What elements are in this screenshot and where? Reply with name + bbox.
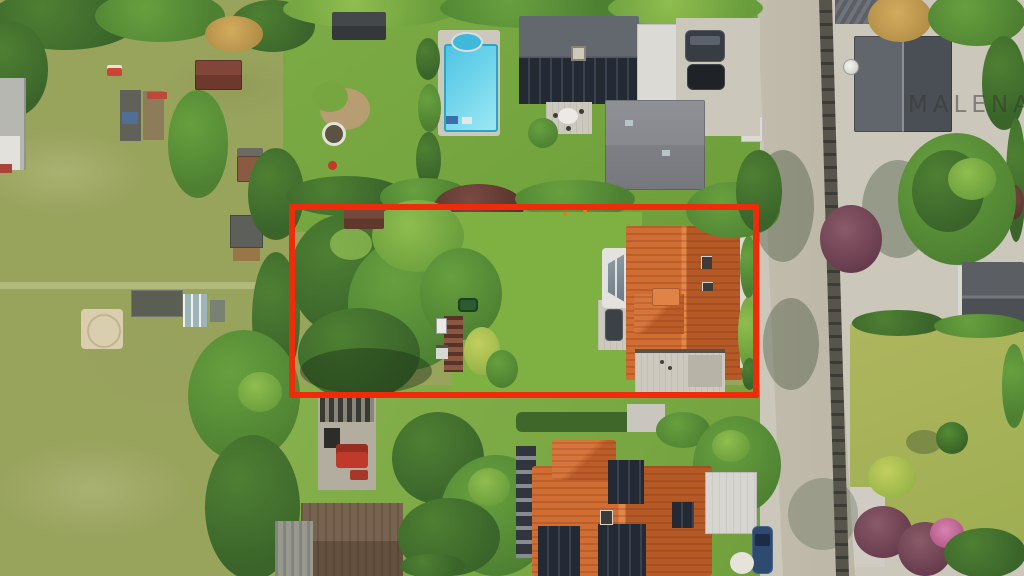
bottom-house-roof-extension bbox=[552, 440, 616, 480]
skylight bbox=[625, 120, 633, 126]
second-house-gray-roof bbox=[605, 100, 705, 190]
patio-table bbox=[558, 108, 578, 124]
barn-roof bbox=[301, 503, 403, 576]
tree-allotment bbox=[168, 90, 228, 198]
white-flowering-bush bbox=[730, 552, 754, 574]
dry-patch bbox=[205, 16, 263, 52]
solar-panel-array bbox=[608, 460, 644, 504]
bushes-right-edge bbox=[1002, 344, 1024, 428]
red-garden-furniture bbox=[336, 444, 368, 468]
blue-tarp bbox=[122, 112, 138, 124]
field-track-line bbox=[0, 282, 292, 289]
canopy-highlight bbox=[948, 158, 996, 200]
chimney bbox=[571, 46, 586, 61]
patio-chair bbox=[553, 113, 558, 118]
lawn-overlay bbox=[312, 82, 348, 112]
pool-equipment bbox=[462, 117, 472, 124]
solar-panel-array bbox=[598, 524, 646, 576]
tree-near-patio bbox=[528, 118, 558, 148]
solar-panel-array bbox=[538, 526, 580, 576]
red-object-left-edge bbox=[0, 164, 12, 173]
satellite-dish bbox=[843, 59, 859, 75]
gray-roof-bottom-left bbox=[275, 521, 313, 576]
red-planter bbox=[147, 92, 167, 99]
parked-suv bbox=[685, 30, 725, 62]
solar-panel-array bbox=[519, 58, 639, 104]
red-ball bbox=[328, 161, 337, 170]
stone-garden-bed bbox=[131, 290, 183, 317]
dark-shed-top bbox=[332, 12, 386, 40]
greenhouse bbox=[183, 294, 207, 327]
patio-chair bbox=[566, 126, 571, 131]
bushes-lawn-border bbox=[852, 310, 944, 336]
garden-structure bbox=[210, 300, 225, 322]
bushes-lawn-border bbox=[934, 314, 1024, 338]
shed-forecourt bbox=[233, 248, 260, 261]
skylight bbox=[662, 150, 670, 156]
topiary-bush bbox=[936, 422, 968, 454]
ride-on-mower bbox=[107, 65, 122, 76]
yellow-shrub bbox=[868, 456, 916, 498]
tree-highlight bbox=[238, 372, 282, 412]
canopy-highlight bbox=[712, 430, 750, 462]
white-garage-bottom bbox=[705, 472, 757, 534]
patio-chair bbox=[579, 109, 584, 114]
purple-leaf-tree bbox=[820, 205, 882, 273]
plot-boundary-outline bbox=[289, 204, 759, 398]
parked-car bbox=[687, 64, 725, 90]
pool-equipment bbox=[446, 116, 458, 124]
red-shed-roof bbox=[195, 60, 242, 90]
trees-bottom-right bbox=[944, 528, 1024, 576]
chimney bbox=[600, 510, 613, 525]
canopy-highlight bbox=[468, 468, 510, 506]
bushes-beside-pool bbox=[418, 84, 441, 132]
suv-windshield bbox=[690, 36, 720, 45]
red-bench bbox=[350, 470, 368, 480]
solar-panel-array bbox=[672, 502, 694, 528]
pergola bbox=[320, 398, 374, 422]
hot-tub bbox=[451, 32, 483, 52]
garden-well bbox=[322, 122, 346, 146]
aerial-photo: MALENART bbox=[0, 0, 1024, 576]
sand-pad-circle bbox=[87, 314, 121, 348]
bushes-beside-pool bbox=[416, 38, 440, 80]
car-windshield bbox=[755, 534, 770, 546]
watermark-text: MALENART bbox=[908, 92, 1024, 118]
tree-shadow-on-road bbox=[763, 298, 819, 390]
hedge-bottom bbox=[400, 554, 466, 576]
hedge-line bbox=[516, 412, 632, 432]
